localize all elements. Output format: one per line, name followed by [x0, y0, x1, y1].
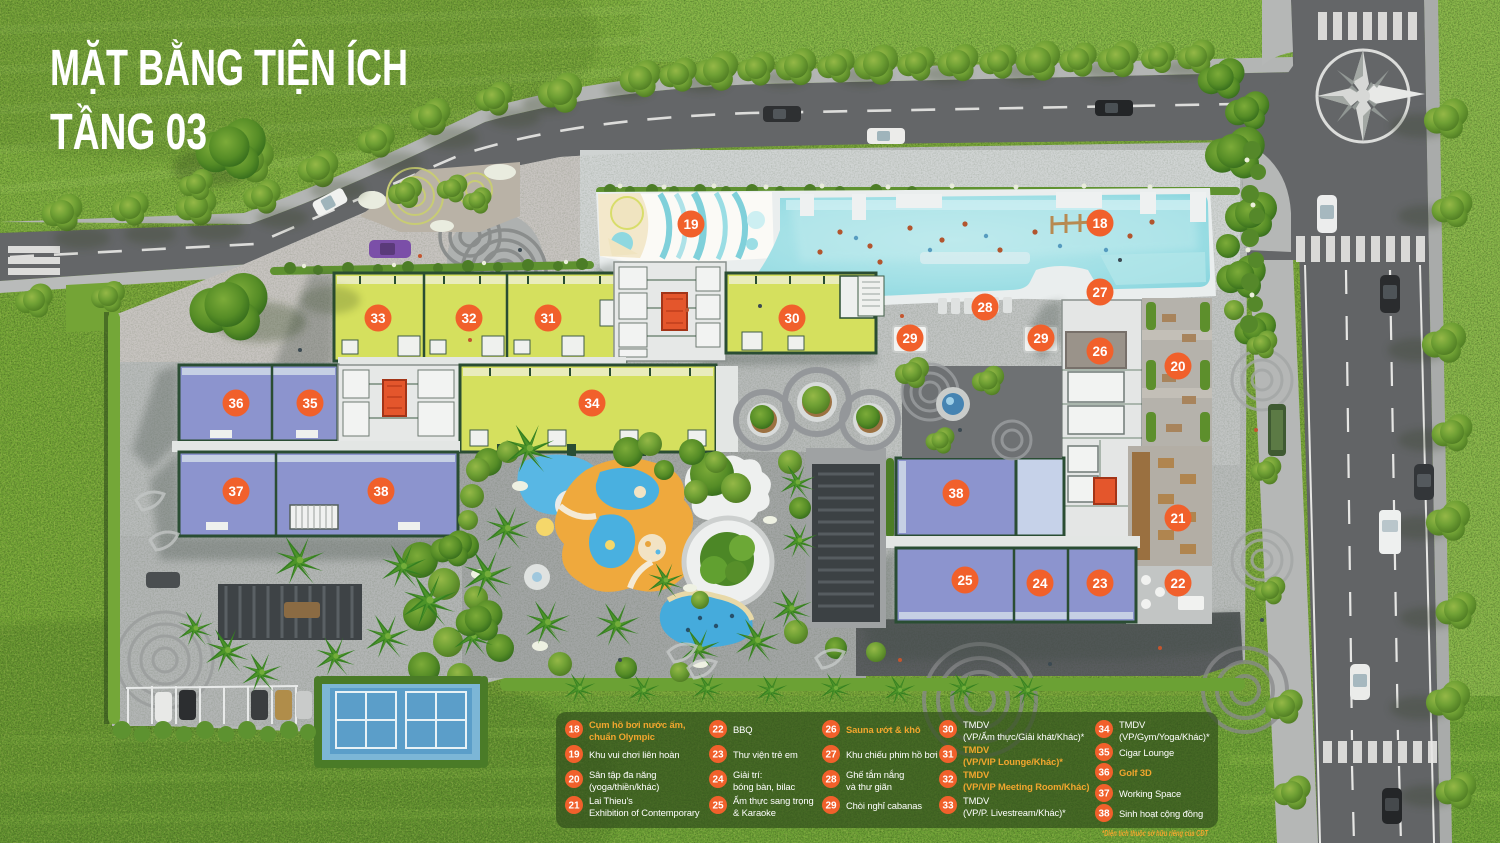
svg-text:Thư viện trẻ em: Thư viện trẻ em: [733, 749, 798, 760]
svg-text:Cụm hồ bơi nước ấm,: Cụm hồ bơi nước ấm,: [589, 719, 685, 730]
svg-text:Sauna ướt & khô: Sauna ướt & khô: [846, 724, 921, 735]
svg-text:Working Space: Working Space: [1119, 788, 1181, 799]
svg-text:20: 20: [568, 775, 580, 786]
svg-text:22: 22: [712, 725, 724, 736]
svg-text:TMDV: TMDV: [963, 769, 990, 780]
svg-text:Ghế tắm nắng: Ghế tắm nắng: [846, 769, 904, 780]
svg-text:20: 20: [1170, 359, 1185, 374]
svg-text:36: 36: [228, 396, 244, 411]
svg-text:TMDV: TMDV: [963, 744, 990, 755]
svg-text:38: 38: [948, 486, 964, 501]
svg-text:Golf 3D: Golf 3D: [1119, 767, 1152, 778]
svg-text:18: 18: [1092, 216, 1108, 231]
svg-text:38: 38: [1098, 809, 1110, 820]
svg-text:24: 24: [712, 775, 724, 786]
svg-text:(VP/VIP Meeting Room/Khác): (VP/VIP Meeting Room/Khác): [963, 781, 1089, 792]
svg-text:35: 35: [1098, 748, 1110, 759]
svg-text:24: 24: [1032, 576, 1048, 591]
svg-text:27: 27: [825, 750, 837, 761]
svg-text:Cigar Lounge: Cigar Lounge: [1119, 747, 1174, 758]
svg-text:Ẩm thực sang trọng: Ẩm thực sang trọng: [733, 795, 814, 806]
svg-text:26: 26: [1092, 344, 1108, 359]
svg-text:36: 36: [1098, 768, 1110, 779]
svg-text:Khu vui chơi liên hoàn: Khu vui chơi liên hoàn: [589, 749, 679, 760]
svg-text:34: 34: [1098, 725, 1110, 736]
svg-text:27: 27: [1092, 285, 1107, 300]
svg-text:18: 18: [568, 725, 580, 736]
svg-text:TMDV: TMDV: [1119, 719, 1146, 730]
svg-text:và thư giãn: và thư giãn: [846, 781, 892, 792]
svg-text:& Karaoke: & Karaoke: [733, 807, 776, 818]
svg-text:23: 23: [712, 750, 724, 761]
svg-text:Giải trí:: Giải trí:: [733, 769, 762, 780]
svg-text:Chòi nghỉ cabanas: Chòi nghỉ cabanas: [846, 800, 922, 811]
svg-text:23: 23: [1092, 576, 1108, 591]
svg-text:25: 25: [957, 573, 973, 588]
svg-text:34: 34: [584, 396, 600, 411]
svg-text:37: 37: [228, 484, 243, 499]
svg-text:19: 19: [683, 217, 698, 232]
svg-text:37: 37: [1098, 789, 1110, 800]
svg-text:Sinh hoạt cộng đồng: Sinh hoạt cộng đồng: [1119, 808, 1203, 819]
svg-text:Khu chiếu phim hồ bơi: Khu chiếu phim hồ bơi: [846, 749, 938, 760]
svg-text:29: 29: [825, 801, 837, 812]
svg-text:TMDV: TMDV: [963, 795, 990, 806]
svg-text:28: 28: [977, 300, 993, 315]
svg-text:32: 32: [461, 311, 476, 326]
svg-text:(VP/Ẩm thực/Giải khát/Khác)*: (VP/Ẩm thực/Giải khát/Khác)*: [963, 731, 1085, 742]
svg-text:21: 21: [568, 801, 580, 812]
svg-text:31: 31: [540, 311, 556, 326]
svg-text:31: 31: [942, 750, 954, 761]
svg-text:19: 19: [568, 750, 580, 761]
svg-text:(yoga/thiền/khác): (yoga/thiền/khác): [589, 781, 659, 792]
svg-text:(VP/VIP Lounge/Khác)*: (VP/VIP Lounge/Khác)*: [963, 756, 1063, 767]
svg-text:*Diện tích thuộc sở hữu riêng: *Diện tích thuộc sở hữu riêng của CĐT: [1102, 829, 1209, 838]
svg-text:chuẩn Olympic: chuẩn Olympic: [589, 731, 655, 742]
svg-text:30: 30: [942, 725, 954, 736]
svg-text:33: 33: [942, 801, 954, 812]
svg-text:Sân tập đa năng: Sân tập đa năng: [589, 769, 656, 780]
svg-text:21: 21: [1170, 511, 1186, 526]
svg-text:BBQ: BBQ: [733, 724, 753, 735]
svg-text:29: 29: [1033, 331, 1048, 346]
svg-text:32: 32: [942, 775, 954, 786]
svg-text:29: 29: [902, 331, 917, 346]
svg-text:33: 33: [370, 311, 386, 326]
svg-text:28: 28: [825, 775, 837, 786]
svg-text:(VP/Gym/Yoga/Khác)*: (VP/Gym/Yoga/Khác)*: [1119, 731, 1210, 742]
svg-text:38: 38: [373, 484, 389, 499]
svg-text:25: 25: [712, 801, 724, 812]
svg-text:30: 30: [784, 311, 799, 326]
svg-text:Lai Thieu's: Lai Thieu's: [589, 795, 633, 806]
svg-text:35: 35: [302, 396, 318, 411]
svg-text:22: 22: [1170, 576, 1185, 591]
svg-text:(VP/P. Livestream/Khác)*: (VP/P. Livestream/Khác)*: [963, 807, 1066, 818]
svg-text:26: 26: [825, 725, 837, 736]
svg-text:TẦNG 03: TẦNG 03: [50, 102, 207, 160]
svg-text:MẶT BẰNG TIỆN ÍCH: MẶT BẰNG TIỆN ÍCH: [50, 38, 408, 96]
svg-text:Exhibition of Contemporary: Exhibition of Contemporary: [589, 807, 700, 818]
svg-text:TMDV: TMDV: [963, 719, 990, 730]
svg-text:bóng bàn, bilac: bóng bàn, bilac: [733, 781, 796, 792]
